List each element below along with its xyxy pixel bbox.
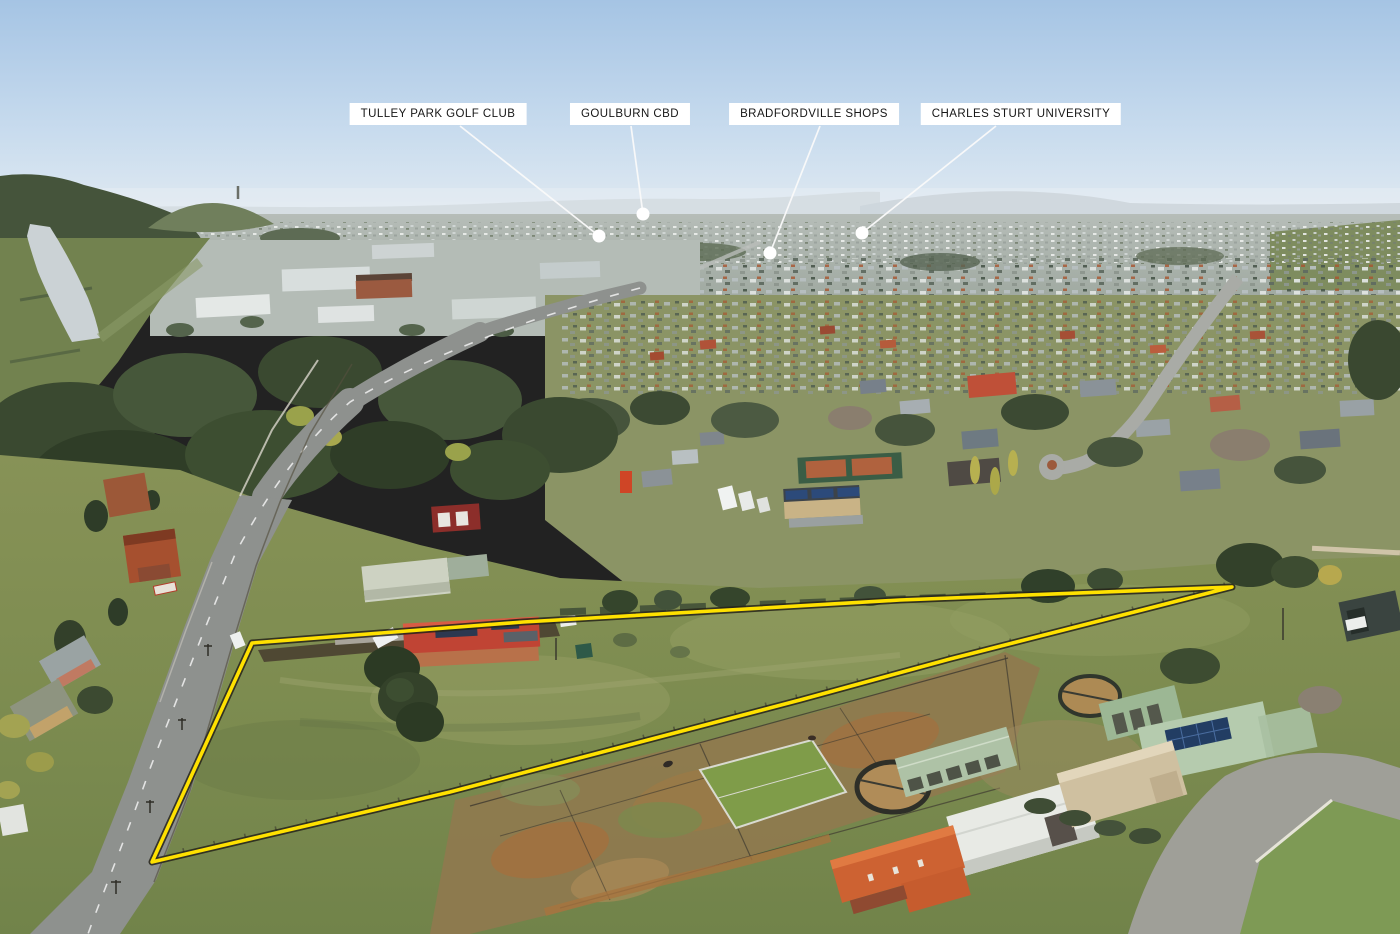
garage-shed [783,485,863,528]
suburb [545,278,1400,595]
callout-dot [637,208,650,221]
horse [808,736,816,741]
tennis-courts [797,452,902,483]
aerial-property-photo: TULLEY PARK GOLF CLUB GOULBURN CBD BRADF… [0,0,1400,934]
callout-label-tulley-park-golf-club: TULLEY PARK GOLF CLUB [350,103,527,125]
callout-label-goulburn-cbd: GOULBURN CBD [570,103,690,125]
red-sign [620,471,632,493]
photo-scene [0,0,1400,934]
small-white-shed [0,804,28,836]
callout-label-bradfordville-shops: BRADFORDVILLE SHOPS [729,103,899,125]
maroon-shed [431,503,481,532]
callout-dot [856,227,869,240]
callout-dot [593,230,606,243]
callout-label-charles-sturt-university: CHARLES STURT UNIVERSITY [921,103,1121,125]
water-tank [575,643,593,659]
callout-dot [764,247,777,260]
brick-building [356,279,413,299]
victorian-house [123,529,181,584]
